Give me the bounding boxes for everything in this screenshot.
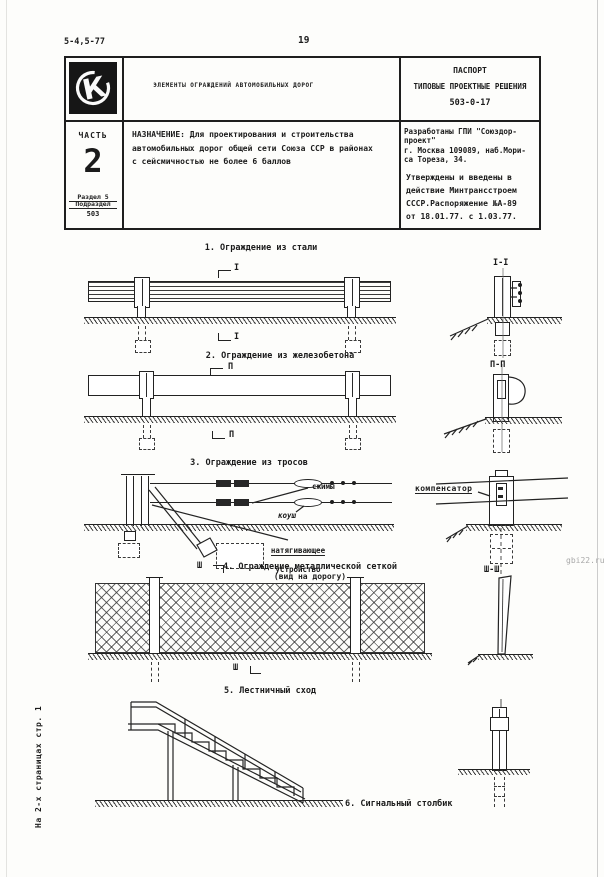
fig3-clamp	[234, 499, 249, 506]
purpose-text: НАЗНАЧЕНИЕ: Для проектирования и строите…	[132, 128, 396, 169]
fig2-marker-bracket-top	[210, 368, 223, 376]
approval-text: Утверждены и введены в действие Минтранс…	[406, 171, 540, 223]
fig3-clamp	[216, 480, 231, 487]
fig2-section-label: П-П	[490, 360, 505, 370]
fig1-post-plate-right	[344, 277, 360, 308]
fig2-post-plate-left	[139, 371, 154, 399]
fig1-marker-top: I	[234, 263, 239, 273]
part-label: ЧАСТЬ	[66, 131, 120, 140]
fig1-bolt-dot	[518, 291, 522, 295]
fig1-post-left-underground	[138, 326, 146, 340]
fig6-underground-rung	[494, 796, 505, 797]
fig3-thimble-loop	[294, 498, 322, 507]
fig2-section-ground	[485, 417, 562, 424]
fig3-ground	[84, 524, 394, 531]
fig2-marker-bracket-bottom	[212, 431, 225, 439]
fig1-marker-bottom: I	[234, 332, 239, 342]
fig2-plate-line	[146, 373, 147, 397]
fig1-post-plate-left	[134, 277, 150, 308]
fig3-compensator-footing	[490, 534, 513, 564]
fig1-marker-bracket-top	[218, 270, 231, 278]
fig3-cable-dot	[341, 481, 345, 485]
watermark: gbi22.ru	[566, 556, 604, 565]
fig4-post-right	[350, 578, 361, 653]
passport-line2: ТИПОВЫЕ ПРОЕКТНЫЕ РЕШЕНИЯ	[400, 82, 540, 91]
fig4-marker-bottom: Ш	[233, 663, 238, 673]
document-title: ЭЛЕМЕНТЫ ОГРАЖДЕНИЙ АВТОМОБИЛЬНЫХ ДОРОГ	[95, 82, 372, 89]
fig3-compensator-mark	[498, 495, 503, 498]
fig3-anchor-block	[124, 531, 136, 541]
header-table-hline	[64, 120, 541, 122]
fig3-right-ground	[466, 524, 562, 531]
fig2-post-right-underground	[349, 425, 357, 438]
fig3-cable-dot	[330, 500, 334, 504]
fig2-ground	[84, 416, 396, 423]
fig5-ground	[95, 800, 343, 807]
fig3-label-compensator: компенсатор	[415, 484, 472, 494]
fig3-cable-dot	[352, 500, 356, 504]
fig6-title: 6. Сигнальный столбик	[345, 799, 452, 809]
fig3-cable-dot	[352, 481, 356, 485]
fig2-post-left-underground	[143, 425, 151, 438]
fig1-section-sleeve	[495, 322, 510, 336]
fig2-marker-top: П	[228, 362, 233, 372]
fig1-bolt-dot	[518, 299, 522, 303]
scanned-document-page: 5-4,5-77 19 К ЭЛЕМЕНТЫ ОГРАЖДЕНИЙ АВТОМО…	[0, 0, 604, 877]
doc-code: 5-4,5-77	[64, 37, 105, 47]
fig4-title: 4. Ограждение металлической сеткой	[160, 562, 460, 572]
fig3-title: 3. Ограждение из тросов	[99, 458, 399, 468]
fig3-clamp	[216, 499, 231, 506]
fig4-marker-bracket-bottom	[250, 666, 261, 674]
fig6-post-detail	[490, 717, 509, 731]
passport-line1: ПАСПОРТ	[401, 66, 539, 75]
scan-edge-left	[6, 0, 7, 877]
fig2-section-rail-face	[497, 380, 506, 399]
fig5-title: 5. Лестничный сход	[120, 686, 420, 696]
page-number: 19	[298, 35, 309, 46]
fig1-plate-line	[352, 279, 353, 306]
fig6-underground-rung	[494, 786, 505, 787]
passport-number: 503-0-17	[401, 98, 539, 108]
fig3-label-thimble: коуш	[278, 511, 296, 520]
fig3-post-b	[141, 476, 149, 526]
fig4-section-label: Ш-Ш	[484, 565, 499, 575]
scan-edge-right	[597, 0, 598, 877]
fig3-compensator-footing-line	[492, 548, 511, 549]
fig6-ground	[458, 769, 530, 775]
fig2-marker-bottom: П	[229, 430, 234, 440]
fig3-compensator-cap	[495, 470, 508, 477]
fig3-cable-dot	[341, 500, 345, 504]
fig6-post-underground	[494, 777, 505, 807]
fig4-ground	[88, 653, 432, 660]
fig4-post-right-underground	[352, 662, 360, 682]
fig2-footing-right	[345, 438, 361, 450]
fig1-section-footing	[494, 340, 511, 356]
fig4-post-left	[149, 578, 160, 653]
fig2-post-left	[142, 398, 151, 416]
fig2-title: 2. Ограждение из железобетона	[130, 351, 430, 361]
developer-text: Разработаны ГПИ "Союздор- проект" г. Мос…	[404, 127, 538, 164]
fig1-section-post-line	[502, 278, 503, 316]
fig3-post-cap	[121, 474, 155, 475]
fig2-plate-line	[352, 373, 353, 397]
fig2-footing-left	[139, 438, 155, 450]
fig1-title: 1. Ограждение из стали	[111, 243, 411, 253]
fig2-post-plate-right	[345, 371, 360, 399]
fig4-section-ground	[478, 654, 533, 660]
fig3-anchor-footing	[118, 543, 140, 558]
podrazdel-label: Подраздел	[69, 200, 117, 209]
fig2-section-footing	[493, 429, 510, 453]
fig3-label-tensioner-line1: натягивающее	[271, 546, 325, 556]
fig3-label-clamps: сжимы	[312, 482, 335, 491]
fig3-clamp	[234, 480, 249, 487]
fig1-bolt-dot	[518, 283, 522, 287]
fig4-subtitle: (вид на дорогу)	[160, 572, 460, 581]
fig3-post-a	[126, 476, 134, 526]
fig3-compensator-mark	[498, 487, 503, 490]
fig1-plate-line	[142, 279, 143, 306]
podrazdel-code: 503	[69, 210, 117, 218]
fig1-marker-bracket-bottom	[218, 333, 231, 341]
fig2-post-right	[348, 398, 357, 416]
fig1-section-label: I-I	[493, 258, 508, 268]
fig1-ground	[84, 317, 396, 324]
part-number: 2	[66, 142, 120, 180]
fig4-mesh-panel	[95, 583, 425, 653]
fig1-section-post	[494, 276, 511, 318]
fig1-post-right-underground	[348, 326, 356, 340]
side-note-vertical: На 2-х страницах стр. 1	[34, 706, 43, 828]
fig4-post-left-underground	[151, 662, 159, 682]
